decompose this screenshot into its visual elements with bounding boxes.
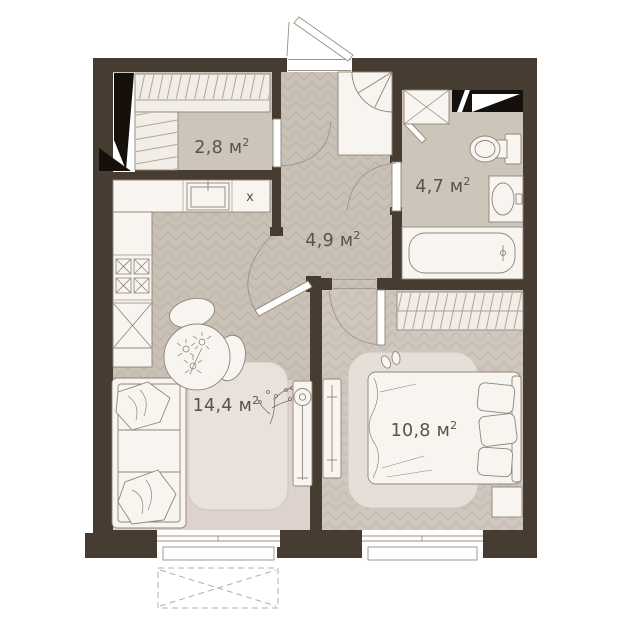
bedroom-window xyxy=(362,530,483,547)
wall-hallway-left xyxy=(272,180,281,233)
room-label-living: 14,4 м2 xyxy=(193,394,260,416)
bathroom-sink xyxy=(489,176,523,222)
balcony xyxy=(158,568,278,608)
room-label-bathroom: 4,7 м2 xyxy=(415,175,470,197)
round-table xyxy=(164,324,230,390)
closet-door-leaf xyxy=(273,119,281,167)
wall-top-right xyxy=(352,58,537,72)
room-label-bedroom: 10,8 м2 xyxy=(391,419,458,441)
bathroom-door-leaf xyxy=(392,162,401,211)
wall-closet-bottom xyxy=(113,170,281,180)
entrance-opening xyxy=(287,58,352,72)
bed-pillows xyxy=(477,382,518,477)
bedside-bench xyxy=(492,487,522,517)
entrance-door-tick xyxy=(287,22,289,56)
closet-wardrobe-left xyxy=(135,112,178,170)
wall-closet-right-upper xyxy=(272,72,281,120)
wall-right xyxy=(523,58,537,536)
room-label-hallway: 4,9 м2 xyxy=(305,229,360,251)
wall-top-left xyxy=(93,58,287,72)
bedroom-door-leaf xyxy=(377,290,385,345)
kitchen-x-mark: х xyxy=(246,190,254,205)
room-label-closet: 2,8 м2 xyxy=(194,136,249,158)
wall-bottom-left-block xyxy=(93,530,157,558)
wall-left xyxy=(93,58,113,530)
floor-lamp xyxy=(293,381,312,486)
wall-bedroom-top-right xyxy=(377,278,523,290)
floor-plan: 2,8 м2 4,7 м2 4,9 м2 14,4 м2 10,8 м2 х xyxy=(0,0,632,632)
wall-bottom-step xyxy=(85,533,93,558)
living-window-sill xyxy=(163,547,274,560)
wall-stub-cap xyxy=(270,227,283,236)
bathtub xyxy=(402,227,523,279)
wall-bedroom-top-left xyxy=(318,278,332,290)
washing-machine xyxy=(404,90,449,124)
living-window xyxy=(157,530,280,547)
wall-bathroom-left-upper xyxy=(392,72,402,160)
wall-bottom-right-block xyxy=(483,530,537,558)
closet-wardrobe-top xyxy=(135,74,270,112)
kitchen-counter-left xyxy=(113,212,152,367)
entrance-door-leaf xyxy=(294,17,353,61)
wall-bathroom-left-lower xyxy=(392,212,402,278)
bedroom-ladder-shelf xyxy=(323,379,341,478)
bedroom-window-sill xyxy=(368,547,477,560)
wall-bottom-mid-block xyxy=(277,530,362,558)
wall-bath-top xyxy=(402,72,523,90)
bedroom-wardrobe xyxy=(397,292,523,330)
sofa xyxy=(112,378,186,528)
